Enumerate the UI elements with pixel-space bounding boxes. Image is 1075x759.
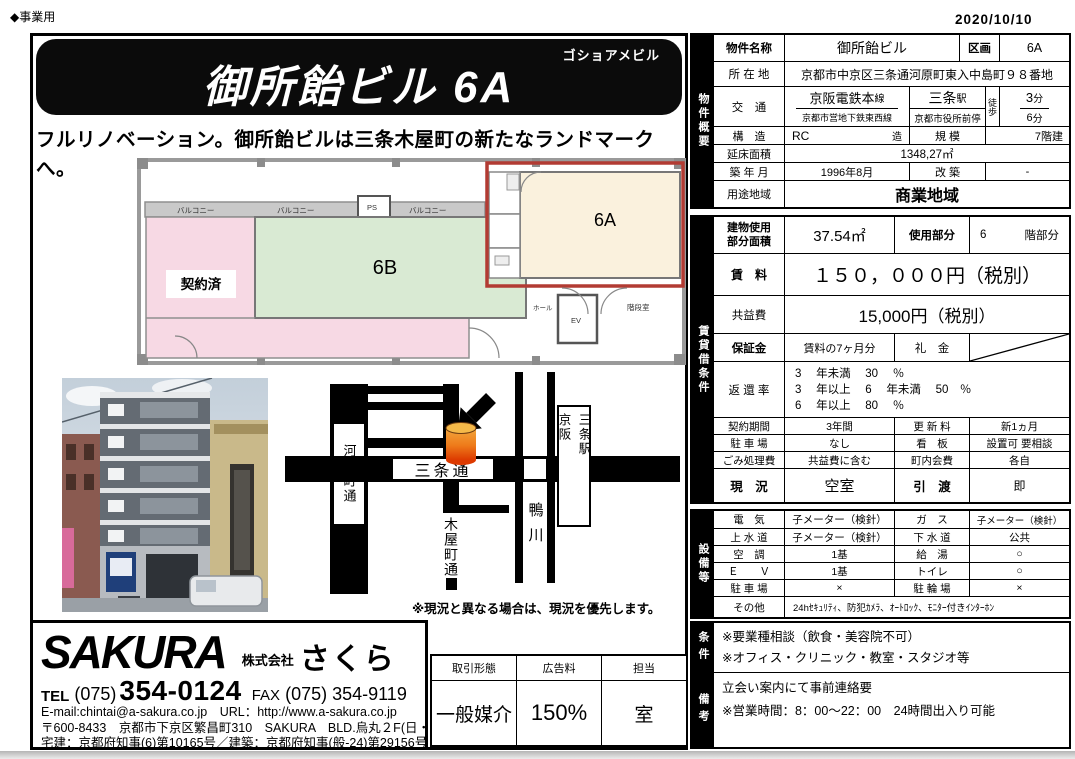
floorplan-image: バルコニー バルコニー バルコニー PS 契約済 6B 6A EV 階段室 ホー… xyxy=(137,158,687,368)
built-date-label: 築 年 月 xyxy=(714,163,784,180)
use-area-value: 37.54㎡ xyxy=(784,217,894,253)
page-edge-shadow xyxy=(0,751,1075,759)
conditions-line-1: ※要業種相談（飲食・美容院不可） xyxy=(722,627,1061,648)
agency-block: SAKURA 株式会社 さくら TEL (075) 354-0124 FAX (… xyxy=(30,620,428,750)
section-facilities: 設備等 電 気 子メーター（検針） ガ ス 子メーター（検針） 上 水 道 子メ… xyxy=(690,509,1071,619)
transport-label: 交 通 xyxy=(714,87,784,126)
map-note: ※現況と異なる場合は、現況を優先します。 xyxy=(412,598,660,617)
remarks-line-1: 立会い案内にて事前連絡要 xyxy=(722,677,1061,700)
stairs-label: 階段室 xyxy=(627,302,650,312)
garbage-label: ごみ処理費 xyxy=(714,452,784,468)
staff-header: 担当 xyxy=(601,656,686,680)
agency-logo-row: SAKURA 株式会社 さくら xyxy=(41,625,417,675)
electric-value: 子メーター（検針） xyxy=(784,511,894,528)
signboard-value: 設置可 要相談 xyxy=(969,435,1069,451)
association-label: 町内会費 xyxy=(894,452,969,468)
conditions-label: 条件 xyxy=(695,631,711,665)
transaction-table: 取引形態 広告料 担当 一般媒介 150% 室 xyxy=(430,654,688,747)
handover-label: 引 渡 xyxy=(894,469,969,502)
road-side-1 xyxy=(368,386,443,394)
electric-label: 電 気 xyxy=(714,511,784,528)
location-map: 河原町通 木屋町通 三条通 鴨川 京阪 三条駅 xyxy=(285,372,680,596)
section-cond-rem-bar: 条件 備考 xyxy=(692,623,714,747)
agency-logo: SAKURA xyxy=(41,629,226,675)
zoning-value: 商業地域 xyxy=(784,181,1069,207)
water-label: 上 水 道 xyxy=(714,529,784,545)
tel-label: TEL xyxy=(41,688,69,705)
sink-fixture xyxy=(507,174,519,190)
station1-name: 三条 xyxy=(929,88,957,108)
use-area-label-1: 建物使用 xyxy=(727,221,771,235)
section-overview-bar: 物件概要 xyxy=(692,35,714,207)
property-name-value: 御所飴ビル xyxy=(784,35,959,61)
station2-name: 京都市役所前 xyxy=(914,111,971,125)
line1-suffix: 線 xyxy=(875,90,885,105)
balcony-label-1: バルコニー xyxy=(177,206,214,215)
conditions-line-2: ※オフィス・クリニック・教室・スタジオ等 xyxy=(722,648,1061,669)
agency-phone-row: TEL (075) 354-0124 FAX (075) 354-9119 xyxy=(41,675,417,705)
property-marker xyxy=(435,380,519,470)
elevator-label: Ｅ Ｖ xyxy=(714,563,784,579)
scale-value: 7階建 xyxy=(985,127,1069,144)
agency-email-url: E-mail:chintai@a-sakura.co.jp URL：http:/… xyxy=(41,705,417,721)
agency-license: 宅建：京都府知事(6)第10165号／建築：京都府知事(般-24)第29156号 xyxy=(41,736,417,750)
river-label: 鴨川 xyxy=(525,487,545,567)
station1-suffix: 駅 xyxy=(957,90,967,105)
ev-label: EV xyxy=(571,316,581,325)
term-label: 契約期間 xyxy=(714,418,784,434)
key-money-value-empty xyxy=(969,334,1069,361)
section-overview-label: 物件概要 xyxy=(695,93,711,149)
building-photo xyxy=(62,378,268,612)
contracted-label: 契約済 xyxy=(180,276,222,292)
6a-side-room-2 xyxy=(489,214,520,248)
parking-fac-value: × xyxy=(784,580,894,596)
gas-label: ガ ス xyxy=(894,511,969,528)
use-part-label: 使用部分 xyxy=(894,217,969,253)
signboard-label: 看 板 xyxy=(894,435,969,451)
fax-label: FAX xyxy=(252,687,280,704)
business-type-label: ◆事業用 xyxy=(10,8,55,25)
refund-row-3: 6 年以上 80 ％ xyxy=(795,398,904,414)
scale-label: 規 模 xyxy=(909,127,985,144)
association-value: 各自 xyxy=(969,452,1069,468)
rent-value: １５０，０００円（税別） xyxy=(784,254,1069,295)
refund-rate-label: 返 還 率 xyxy=(714,362,784,417)
built-date-value: 1996年8月 xyxy=(784,163,909,180)
water-value: 子メーター（検針） xyxy=(784,529,894,545)
tel-area-code: (075) xyxy=(74,684,116,705)
road-side-2 xyxy=(368,402,443,410)
rent-label: 賃 料 xyxy=(714,254,784,295)
hot-water-value: ○ xyxy=(969,546,1069,562)
agency-corp-type: 株式会社 xyxy=(242,650,294,669)
flyer-page: ◆事業用 2020/10/10 ゴショアメビル 御所飴ビル 6A フルリノベーシ… xyxy=(0,0,1075,759)
property-title: 御所飴ビル 6A xyxy=(36,51,682,115)
walk-label: 徒歩 xyxy=(985,87,999,126)
walk1-unit: 分 xyxy=(1033,90,1043,105)
transaction-type-value: 一般媒介 xyxy=(432,681,516,745)
fax-number: (075) 354-9119 xyxy=(285,684,407,705)
common-fee-value: 15,000円（税別） xyxy=(784,296,1069,333)
road-kiyamachi-stub xyxy=(446,578,457,590)
ps-label: PS xyxy=(367,203,377,212)
parking-value: なし xyxy=(784,435,894,451)
sewer-label: 下 水 道 xyxy=(894,529,969,545)
parking-label: 駐 車 場 xyxy=(714,435,784,451)
walk2-unit: 分 xyxy=(1033,110,1043,125)
structure-suffix: 造 xyxy=(892,128,902,143)
bridge xyxy=(524,459,546,479)
handover-value: 即 xyxy=(969,469,1069,502)
renovation-value: - xyxy=(985,163,1069,180)
date-label: 2020/10/10 xyxy=(955,12,1033,27)
refund-row-2: 3 年以上 6 年未満 50 ％ xyxy=(795,382,971,398)
key-money-label: 礼 金 xyxy=(894,334,969,361)
section-facilities-bar: 設備等 xyxy=(692,511,714,617)
term-value: 3年間 xyxy=(784,418,894,434)
renewal-value: 新1ヵ月 xyxy=(969,418,1069,434)
structure-value: RC xyxy=(792,129,809,143)
zoning-label: 用途地域 xyxy=(714,181,784,207)
gas-value: 子メーター（検針） xyxy=(969,511,1069,528)
address-label: 所 在 地 xyxy=(714,62,784,86)
other-label: その他 xyxy=(714,597,784,617)
agency-name: さくら xyxy=(300,645,396,675)
station-box: 京阪 三条駅 xyxy=(557,405,591,527)
toilet-fixture xyxy=(495,256,509,265)
deposit-label: 保証金 xyxy=(714,334,784,361)
station2-suffix: 停 xyxy=(971,111,981,125)
section-overview: 物件概要 物件名称 御所飴ビル 区画 6A 所 在 地 京都市中京区三条通河原町… xyxy=(690,33,1071,209)
section-conditions-remarks: 条件 備考 ※要業種相談（飲食・美容院不可） ※オフィス・クリニック・教室・スタ… xyxy=(690,621,1071,749)
staff-value: 室 xyxy=(601,681,686,745)
line1-name: 京阪電鉄本 xyxy=(809,88,874,107)
use-part-number: 6 xyxy=(980,229,986,241)
property-name-label: 物件名称 xyxy=(714,35,784,61)
ac-label: 空 調 xyxy=(714,546,784,562)
transaction-type-header: 取引形態 xyxy=(432,656,516,680)
station-label-line: 京阪 xyxy=(555,413,574,525)
status-value: 空室 xyxy=(784,469,894,502)
other-value: 24hｾｷｭﾘﾃｨ、防犯ｶﾒﾗ、ｵｰﾄﾛｯｸ、ﾓﾆﾀｰ付きｲﾝﾀｰﾎﾝ xyxy=(784,597,1069,617)
status-label: 現 況 xyxy=(714,469,784,502)
bicycle-label: 駐 輪 場 xyxy=(894,580,969,596)
toilet-label: トイレ xyxy=(894,563,969,579)
remarks-label: 備考 xyxy=(695,693,711,727)
station-label-name: 三条駅 xyxy=(575,413,594,525)
ad-fee-value: 150% xyxy=(516,681,601,745)
address-value: 京都市中京区三条通河原町東入中島町９８番地 xyxy=(784,62,1069,86)
line2-name: 京都市営地下鉄東西 xyxy=(802,111,883,124)
floor-area-label: 延床面積 xyxy=(714,145,784,162)
garbage-value: 共益費に含む xyxy=(784,452,894,468)
sewer-value: 公共 xyxy=(969,529,1069,545)
refund-row-1: 3 年未満 30 ％ xyxy=(795,366,904,382)
title-banner: ゴショアメビル 御所飴ビル 6A xyxy=(36,39,682,115)
deposit-value: 賃料の7ヶ月分 xyxy=(784,334,894,361)
hot-water-label: 給 湯 xyxy=(894,546,969,562)
renewal-label: 更 新 料 xyxy=(894,418,969,434)
common-fee-label: 共益費 xyxy=(714,296,784,333)
road-kiyamachi-lower xyxy=(443,482,459,513)
unit-6b-label: 6B xyxy=(373,257,397,279)
section-no-label: 区画 xyxy=(959,35,999,61)
ac-value: 1基 xyxy=(784,546,894,562)
marker-cylinder-top xyxy=(446,423,476,434)
walk1-minutes: 3 xyxy=(1026,90,1033,105)
balcony-label-3: バルコニー xyxy=(409,206,446,215)
road-side-3 xyxy=(368,438,443,448)
section-facilities-label: 設備等 xyxy=(695,543,711,585)
unit-6a-label: 6A xyxy=(594,210,616,230)
remarks-box: 立会い案内にて事前連絡要 ※営業時間：8：00～22：00 24時間出入り可能 xyxy=(714,673,1069,747)
structure-label: 構 造 xyxy=(714,127,784,144)
section-lease-bar: 賃貸借条件 xyxy=(692,217,714,502)
conditions-box: ※要業種相談（飲食・美容院不可） ※オフィス・クリニック・教室・スタジオ等 xyxy=(714,623,1069,673)
tel-number: 354-0124 xyxy=(119,677,241,705)
balcony-label-2: バルコニー xyxy=(277,206,314,215)
road-branch xyxy=(459,505,509,513)
floor-area-value: 1348,27㎡ xyxy=(784,145,1069,162)
parking-fac-label: 駐 車 場 xyxy=(714,580,784,596)
use-area-label-2: 部分面積 xyxy=(727,235,771,249)
section-lease: 賃貸借条件 建物使用 部分面積 37.54㎡ 使用部分 6階部分 賃 料 １５０… xyxy=(690,215,1071,504)
remarks-line-2: ※営業時間：8：00～22：00 24時間出入り可能 xyxy=(722,700,1061,723)
toilet-value: ○ xyxy=(969,563,1069,579)
renovation-label: 改 築 xyxy=(909,163,985,180)
hall-label: ホール xyxy=(533,304,553,312)
section-lease-label: 賃貸借条件 xyxy=(695,325,711,395)
agency-address: 〒600-8433 京都市下京区繁昌町310 SAKURA BLD.烏丸２F(日… xyxy=(41,721,417,737)
use-part-suffix: 階部分 xyxy=(1025,227,1060,243)
elevator-value: 1基 xyxy=(784,563,894,579)
section-no-value: 6A xyxy=(999,35,1069,61)
bicycle-value: × xyxy=(969,580,1069,596)
line2-suffix: 線 xyxy=(883,111,892,124)
ad-fee-header: 広告料 xyxy=(516,656,601,680)
road-kiyamachi-label: 木屋町通 xyxy=(440,516,462,578)
